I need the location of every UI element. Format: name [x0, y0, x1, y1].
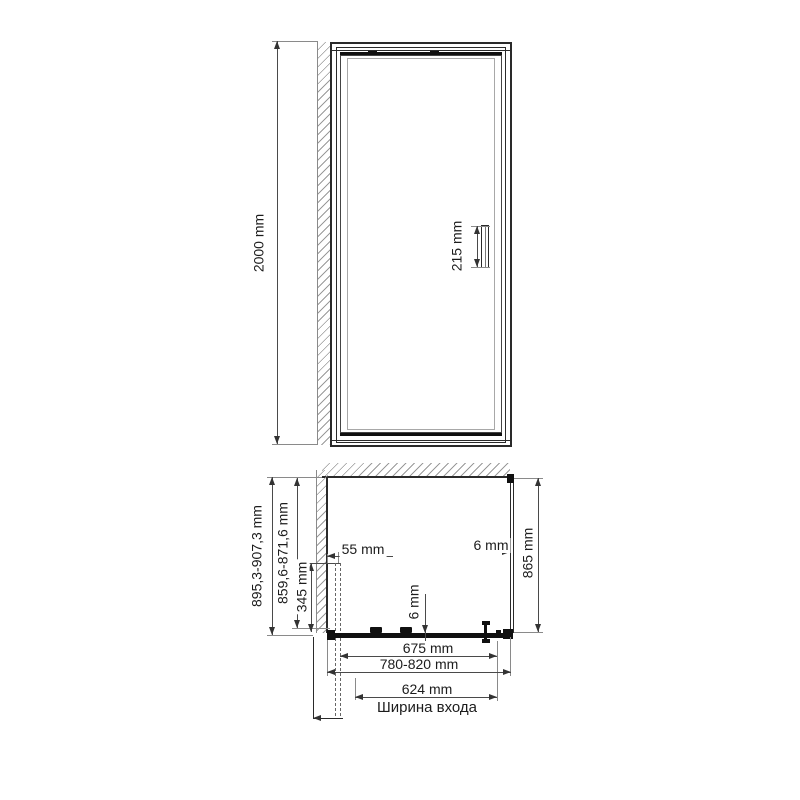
dim-side-offset-label: 345 mm — [295, 560, 310, 615]
dim-arrow — [422, 625, 428, 633]
ext-line — [514, 632, 543, 633]
dim-arrow — [474, 259, 480, 267]
dim-side-offset-line — [311, 563, 312, 632]
dim-2000-label: 2000 mm — [252, 212, 267, 274]
dim-arrow — [535, 478, 541, 486]
side-glass-panel — [510, 477, 514, 633]
dim-side-panel-line — [538, 478, 539, 632]
ext-line — [471, 267, 490, 268]
dim-arrow — [327, 553, 335, 559]
plan-back-wall-face — [322, 476, 511, 478]
dim-entrance-label: 624 mm — [400, 682, 455, 697]
door-bar-plan — [330, 633, 508, 638]
dim-arrow — [294, 478, 300, 486]
door-glass-inner — [347, 58, 495, 430]
door-bottom-profile — [340, 433, 502, 436]
dim-arrow — [327, 669, 335, 675]
ext-line — [267, 635, 313, 636]
dim-arrow — [313, 715, 321, 721]
door-handle-plan-flange-bottom — [482, 639, 490, 643]
adjustment-dashed-line — [335, 563, 336, 716]
top-rail-line — [332, 50, 510, 51]
technical-drawing: 2000 mm 215 mm — [0, 0, 800, 800]
dim-arrow — [503, 669, 511, 675]
dim-overall-depth-label: 895,3-907,3 mm — [250, 503, 265, 609]
plan-back-wall-hatch — [322, 463, 510, 476]
door-clip-1 — [370, 627, 382, 633]
dim-overall-depth-line — [272, 477, 273, 635]
dim-side-panel-label: 865 mm — [521, 526, 536, 581]
side-glass-top-anchor — [507, 474, 514, 483]
ext-line — [272, 444, 318, 445]
door-bar-right-block-1 — [496, 630, 501, 638]
dim-arrow — [269, 627, 275, 635]
door-bar-right-block-2 — [503, 629, 513, 639]
dim-arrow — [340, 653, 348, 659]
dim-arrow — [308, 624, 314, 632]
dim-entrance-line — [355, 697, 497, 698]
dim-door-glass-line — [425, 594, 426, 641]
dim-inner-depth-label: 859,6-871,6 mm — [276, 500, 291, 606]
dim-arrow — [535, 624, 541, 632]
dim-2000-line — [277, 41, 278, 444]
dim-arrow — [489, 694, 497, 700]
dim-arrow — [274, 41, 280, 49]
dim-arrow — [355, 694, 363, 700]
dim-overall-width-line — [327, 672, 511, 673]
door-handle-plan-stem — [484, 625, 487, 639]
ext-line — [497, 641, 498, 701]
dim-arrow — [269, 477, 275, 485]
front-wall-hatch — [317, 42, 331, 445]
dim-door-glass-label: 6 mm — [407, 583, 422, 622]
door-bar-left-block — [327, 630, 335, 640]
adjustment-dashed-line — [340, 563, 341, 716]
bottom-rail-line — [332, 440, 510, 441]
entrance-caption: Ширина входа — [375, 700, 479, 716]
dim-wall-profile-label: 55 mm — [340, 542, 387, 557]
door-clip-2 — [400, 627, 412, 633]
dim-215-label: 215 mm — [450, 219, 465, 274]
dim-arrow — [489, 653, 497, 659]
wall-lower-extension — [313, 637, 314, 718]
dim-arrow — [294, 620, 300, 628]
dim-overall-width-label: 780-820 mm — [378, 657, 461, 672]
door-handle-front-line — [485, 226, 486, 267]
dim-arrow — [274, 436, 280, 444]
dim-arrow — [474, 226, 480, 234]
dim-fixed-part-label: 675 mm — [401, 641, 456, 656]
dim-side-glass-label: 6 mm — [472, 538, 511, 553]
